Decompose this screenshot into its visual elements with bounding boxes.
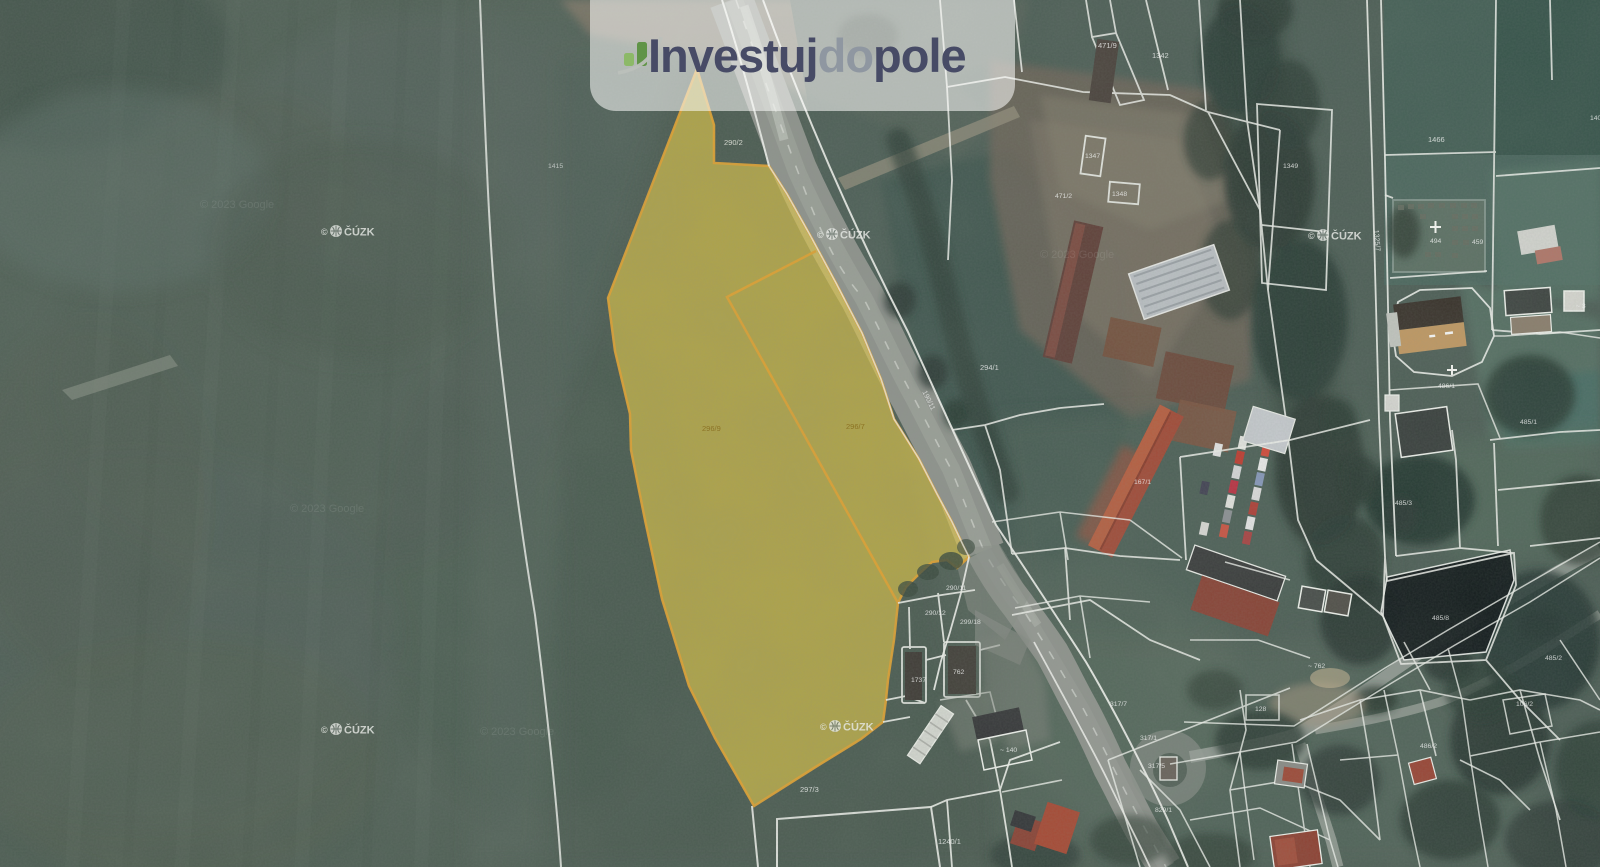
svg-text:Investujdopole: Investujdopole [648,29,966,82]
